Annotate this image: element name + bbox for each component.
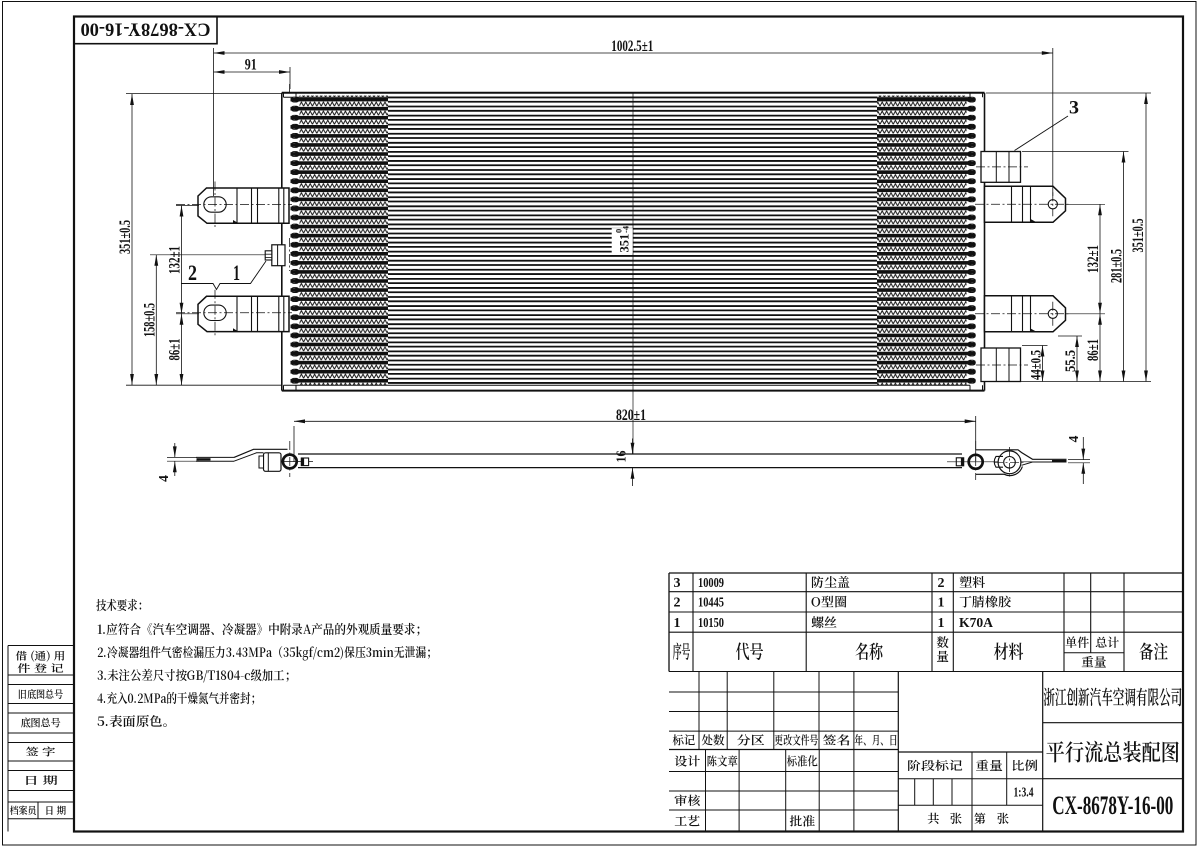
svg-text:丁腈橡胶: 丁腈橡胶 [959, 592, 1012, 611]
svg-text:91: 91 [245, 57, 257, 74]
svg-text:平行流总装配图: 平行流总装配图 [1046, 735, 1180, 768]
svg-text:批准: 批准 [789, 812, 815, 829]
svg-text:共: 共 [927, 810, 940, 827]
svg-text:1: 1 [938, 596, 945, 611]
svg-text:日 期: 日 期 [45, 802, 67, 817]
svg-text:总计: 总计 [1095, 633, 1119, 651]
svg-text:档案员: 档案员 [10, 802, 37, 817]
svg-text:CX-8678Y-16-00: CX-8678Y-16-00 [81, 19, 211, 40]
svg-text:标准化: 标准化 [787, 753, 818, 770]
svg-text:塑料: 塑料 [959, 572, 985, 591]
svg-text:16: 16 [614, 450, 629, 462]
svg-text:标记: 标记 [673, 732, 696, 749]
svg-text:351±0.5: 351±0.5 [1130, 219, 1147, 253]
svg-text:10150: 10150 [698, 616, 724, 631]
svg-text:签 字: 签 字 [26, 745, 57, 760]
svg-text:1.应符合《汽车空调器、冷凝器》中附录A产品的外观质量要求；: 1.应符合《汽车空调器、冷凝器》中附录A产品的外观质量要求； [97, 619, 427, 638]
svg-text:分区: 分区 [737, 732, 766, 749]
svg-text:132±1: 132±1 [167, 246, 184, 274]
svg-text:O型圈: O型圈 [811, 592, 847, 611]
svg-text:55.5: 55.5 [1063, 350, 1079, 372]
svg-text:3: 3 [674, 576, 681, 591]
svg-text:材料: 材料 [994, 637, 1024, 664]
svg-text:技术要求：: 技术要求： [96, 595, 148, 614]
svg-text:量: 量 [936, 647, 949, 665]
svg-text:86±1: 86±1 [1085, 339, 1102, 361]
svg-text:浙江创新汽车空调有限公司: 浙江创新汽车空调有限公司 [1043, 682, 1182, 711]
svg-text:-4: -4 [621, 225, 631, 233]
svg-text:重量: 重量 [976, 757, 1003, 774]
svg-text:10009: 10009 [698, 576, 724, 591]
svg-text:132±1: 132±1 [1085, 245, 1102, 273]
svg-text:4: 4 [1066, 435, 1081, 442]
svg-text:2: 2 [938, 576, 945, 591]
svg-text:1:3.4: 1:3.4 [1014, 786, 1034, 801]
svg-text:阶段标记: 阶段标记 [907, 757, 963, 774]
svg-text:名称: 名称 [855, 637, 883, 664]
svg-text:螺丝: 螺丝 [811, 612, 837, 631]
svg-text:3: 3 [1069, 98, 1079, 119]
svg-text:工艺: 工艺 [674, 812, 701, 829]
svg-text:4.充入0.2MPa的干燥氮气并密封；: 4.充入0.2MPa的干燥氮气并密封； [97, 688, 261, 707]
svg-text:86±1: 86±1 [167, 339, 184, 361]
svg-text:158±0.5: 158±0.5 [142, 303, 159, 337]
svg-text:件 登 记: 件 登 记 [18, 661, 65, 676]
svg-text:重量: 重量 [1082, 653, 1107, 671]
svg-text:备注: 备注 [1139, 637, 1168, 664]
svg-text:1: 1 [674, 616, 681, 631]
svg-text:底图总号: 底图总号 [21, 716, 61, 731]
svg-text:820±1: 820±1 [616, 407, 646, 424]
svg-text:陈文章: 陈文章 [707, 753, 738, 770]
svg-text:K70A: K70A [959, 616, 994, 631]
svg-text:签名: 签名 [823, 732, 851, 749]
svg-text:2.冷凝器组件气密检漏压力3.43MPa（35kgf/cm2: 2.冷凝器组件气密检漏压力3.43MPa（35kgf/cm2)保压3min无泄漏… [97, 642, 437, 661]
svg-text:1002.5±1: 1002.5±1 [611, 38, 653, 55]
svg-text:防尘盖: 防尘盖 [811, 572, 850, 591]
svg-text:旧底图总号: 旧底图总号 [18, 687, 63, 702]
svg-text:审核: 审核 [674, 792, 700, 809]
svg-text:3.未注公差尺寸按GB/T1804-c级加工；: 3.未注公差尺寸按GB/T1804-c级加工； [97, 665, 296, 684]
svg-text:CX-8678Y-16-00: CX-8678Y-16-00 [1052, 791, 1173, 820]
svg-text:年、月、日: 年、月、日 [855, 732, 898, 749]
svg-text:代号: 代号 [736, 637, 764, 664]
svg-text:1: 1 [233, 260, 240, 285]
svg-text:第: 第 [974, 810, 987, 827]
svg-text:2: 2 [188, 260, 197, 285]
svg-text:设计: 设计 [674, 753, 700, 770]
svg-text:351: 351 [618, 234, 632, 253]
svg-text:处数: 处数 [702, 732, 725, 749]
svg-text:日 期: 日 期 [24, 773, 59, 788]
svg-text:10445: 10445 [698, 596, 724, 611]
svg-text:351±0.5: 351±0.5 [117, 220, 134, 254]
svg-text:序号: 序号 [673, 638, 691, 665]
svg-text:4: 4 [156, 475, 171, 482]
svg-text:比例: 比例 [1011, 757, 1039, 774]
svg-text:张: 张 [997, 810, 1009, 827]
svg-text:44±0.5: 44±0.5 [1029, 350, 1045, 380]
svg-text:2: 2 [674, 596, 681, 611]
svg-text:5.表面原色。: 5.表面原色。 [97, 711, 176, 730]
svg-text:1: 1 [938, 616, 945, 631]
svg-text:281±0.5: 281±0.5 [1109, 249, 1126, 283]
svg-text:更改文件号: 更改文件号 [774, 732, 818, 749]
svg-text:张: 张 [950, 810, 962, 827]
svg-text:单件: 单件 [1065, 633, 1089, 651]
